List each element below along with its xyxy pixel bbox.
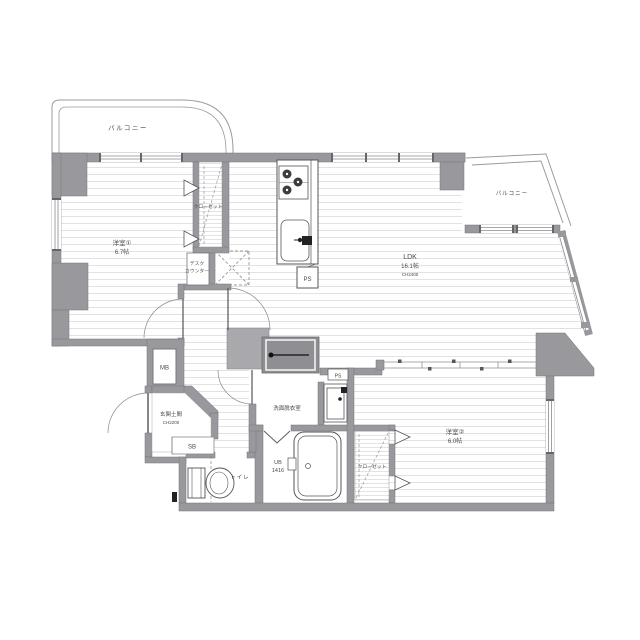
floor-plan: バルコニー バルコニー [0,0,640,640]
mb-label: MB [160,366,169,372]
sink-icon [281,220,312,261]
desk-label-1: デスク [190,260,205,267]
washroom-label: 洗面脱衣室 [273,404,301,412]
floor-plan-canvas: バルコニー バルコニー [0,0,640,640]
handrail-icon [172,492,177,502]
room2-label: 洋室② [446,427,465,436]
balcony1-label: バルコニー [108,124,148,132]
genkan-ch-label: CH2200 [163,420,180,425]
washer-space-icon [324,384,347,422]
ps-washroom-label: PS [335,374,342,380]
storage-box-door [262,337,319,373]
balcony-top-right [466,154,571,226]
desk-label-2: カウンター [185,268,209,275]
ldk-label: LDK [403,254,417,261]
ldk-size-label: 16.1帖 [401,262,419,270]
room1-size-label: 6.7帖 [115,248,129,256]
ldk-ch-label: CH2400 [402,272,419,277]
closet1-label: クローゼット [194,203,223,210]
room2-size-label: 6.0帖 [448,437,462,445]
ps-kitchen-label: PS [303,277,311,283]
toilet-icon [188,468,234,498]
balcony2-label: バルコニー [496,190,528,197]
sb-label: SB [188,445,196,451]
closet2-label: クローゼット [358,463,387,470]
bath-folding-door-icon [264,431,290,443]
ub-label: UB [274,460,282,466]
genkan-label: 玄関土間 [160,410,183,418]
stove-icon [279,166,308,199]
room1-label: 洋室① [113,238,132,247]
bathtub-icon [288,432,341,500]
toilet-label: トイレ [230,475,250,481]
ub-size-label: 1416 [272,468,284,474]
